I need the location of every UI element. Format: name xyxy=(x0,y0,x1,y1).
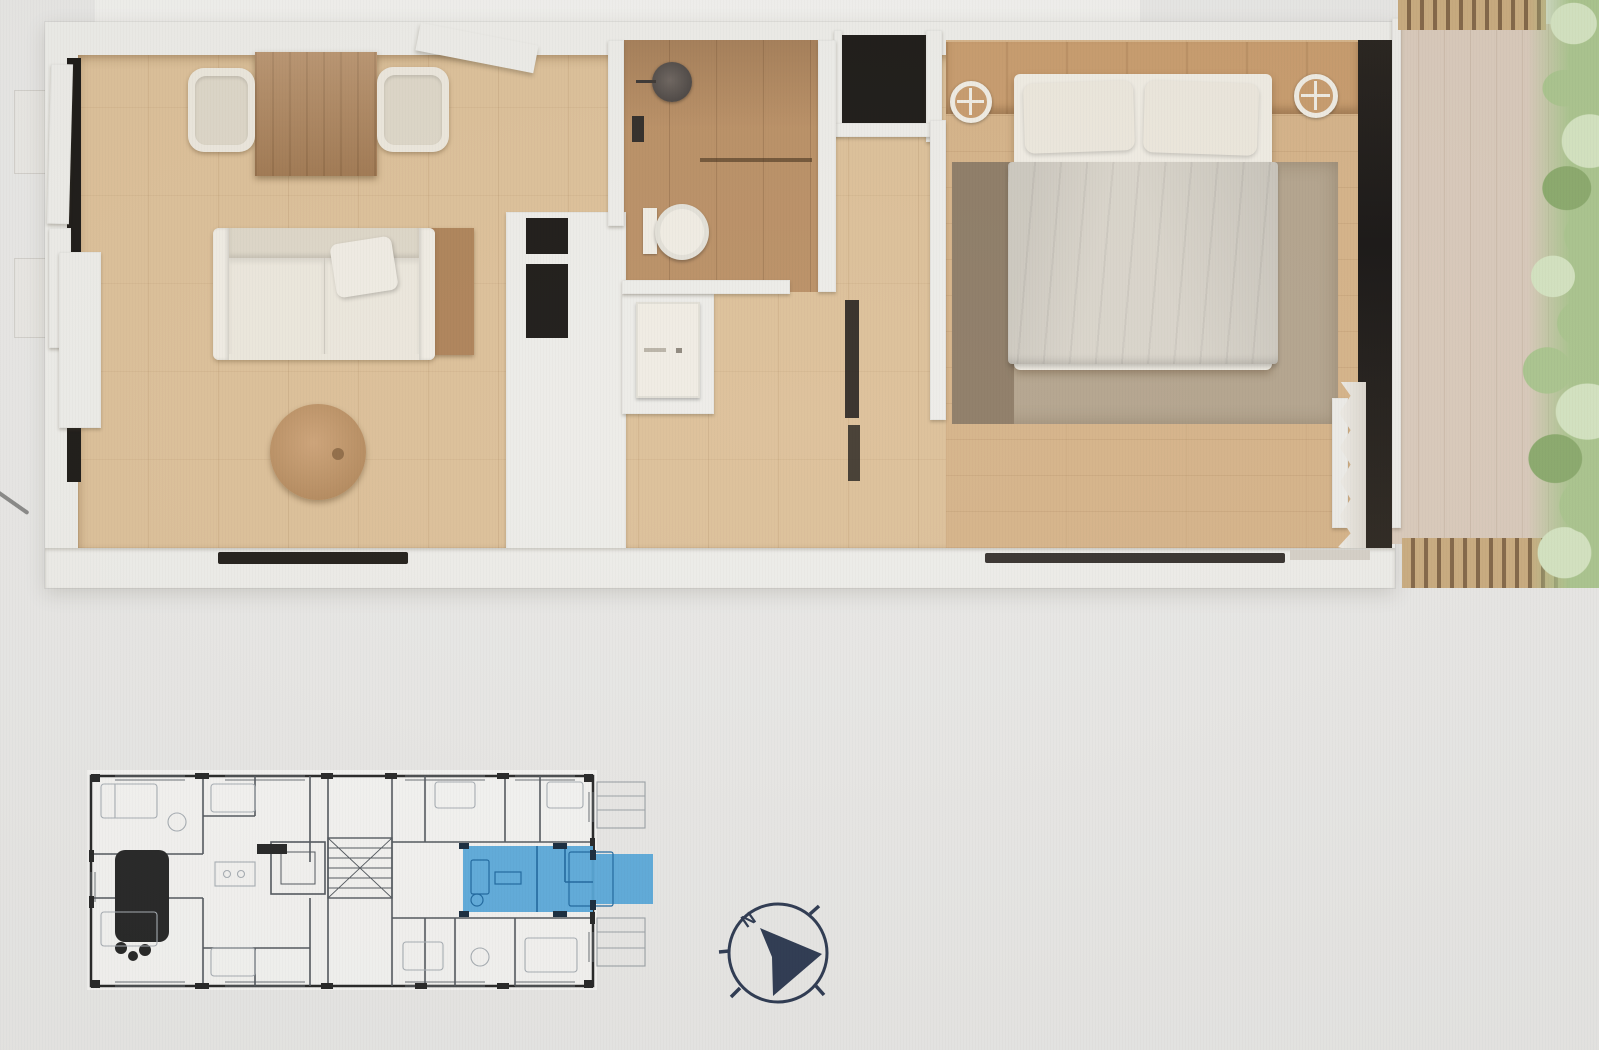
bottom-wall xyxy=(45,548,1395,588)
window-sill-tab xyxy=(14,258,48,338)
sofa-armrest xyxy=(213,228,229,360)
sofa xyxy=(213,228,435,360)
door-threshold xyxy=(1290,550,1370,560)
dining-chair-right xyxy=(377,67,449,152)
apartment-3d-render xyxy=(45,22,1395,588)
window-strip xyxy=(985,553,1285,563)
window-sill-tab xyxy=(14,90,48,174)
chair-seat xyxy=(195,76,248,145)
vanity-sink xyxy=(636,302,700,398)
compass-rose: N xyxy=(698,880,863,1030)
screen-photo: N xyxy=(0,0,1599,1050)
building-floor-plan xyxy=(85,752,657,992)
bathroom-wall xyxy=(608,40,624,226)
vanity-handle xyxy=(644,348,666,352)
sofa-armrest xyxy=(419,228,435,360)
sofa-seat-cushion xyxy=(229,258,325,354)
table-knob xyxy=(332,448,344,460)
plan-plant xyxy=(128,951,138,961)
dining-table xyxy=(255,52,377,176)
window-strip xyxy=(218,552,408,564)
door-mullion xyxy=(1392,18,1401,528)
vanity-nook xyxy=(622,294,714,414)
toilet-bowl xyxy=(655,204,709,260)
lamp-cross xyxy=(957,100,984,103)
plan-plant xyxy=(123,934,131,942)
wall-lamp-right xyxy=(1294,74,1338,118)
unit-fill xyxy=(463,846,653,912)
kitchen-counter xyxy=(506,212,626,560)
cooktop xyxy=(526,264,568,338)
bathroom-wall xyxy=(622,280,790,294)
niche-ledge xyxy=(834,123,944,137)
lamp-cross xyxy=(1301,94,1330,97)
bathroom-wall xyxy=(818,40,836,292)
wardrobe-niche xyxy=(842,35,926,123)
plan-plant xyxy=(115,942,127,954)
photo-artifact-line xyxy=(0,489,30,515)
bed xyxy=(1014,74,1272,370)
vanity-faucet xyxy=(676,348,682,353)
coffee-table xyxy=(270,404,366,500)
kitchen-sink xyxy=(526,218,568,254)
pillow-left xyxy=(1023,80,1135,154)
north-label: N xyxy=(737,908,759,932)
toilet xyxy=(643,202,715,262)
console-shelf xyxy=(848,425,860,481)
bedroom-wall xyxy=(930,120,946,420)
shaft-wall xyxy=(257,844,287,854)
bathroom-shelf xyxy=(700,158,812,162)
wall-lamp-left xyxy=(950,81,992,123)
window-shutter xyxy=(47,64,73,225)
patio-hatch xyxy=(115,850,169,942)
throw-pillow xyxy=(329,235,399,298)
pillow-right xyxy=(1143,80,1259,156)
plant-wall xyxy=(1484,0,1599,588)
shower-head xyxy=(652,62,692,102)
balcony xyxy=(1392,0,1599,588)
chair-seat xyxy=(384,75,442,145)
duvet xyxy=(1008,162,1278,364)
rug-shadow-edge xyxy=(952,162,1014,424)
dining-chair-left xyxy=(188,68,255,152)
sideboard xyxy=(59,252,101,428)
sofa-side-table xyxy=(430,228,474,355)
shower-arm xyxy=(636,80,656,83)
highlighted-unit xyxy=(459,843,653,917)
shower-controls xyxy=(632,116,644,142)
console-shelf xyxy=(845,300,859,418)
